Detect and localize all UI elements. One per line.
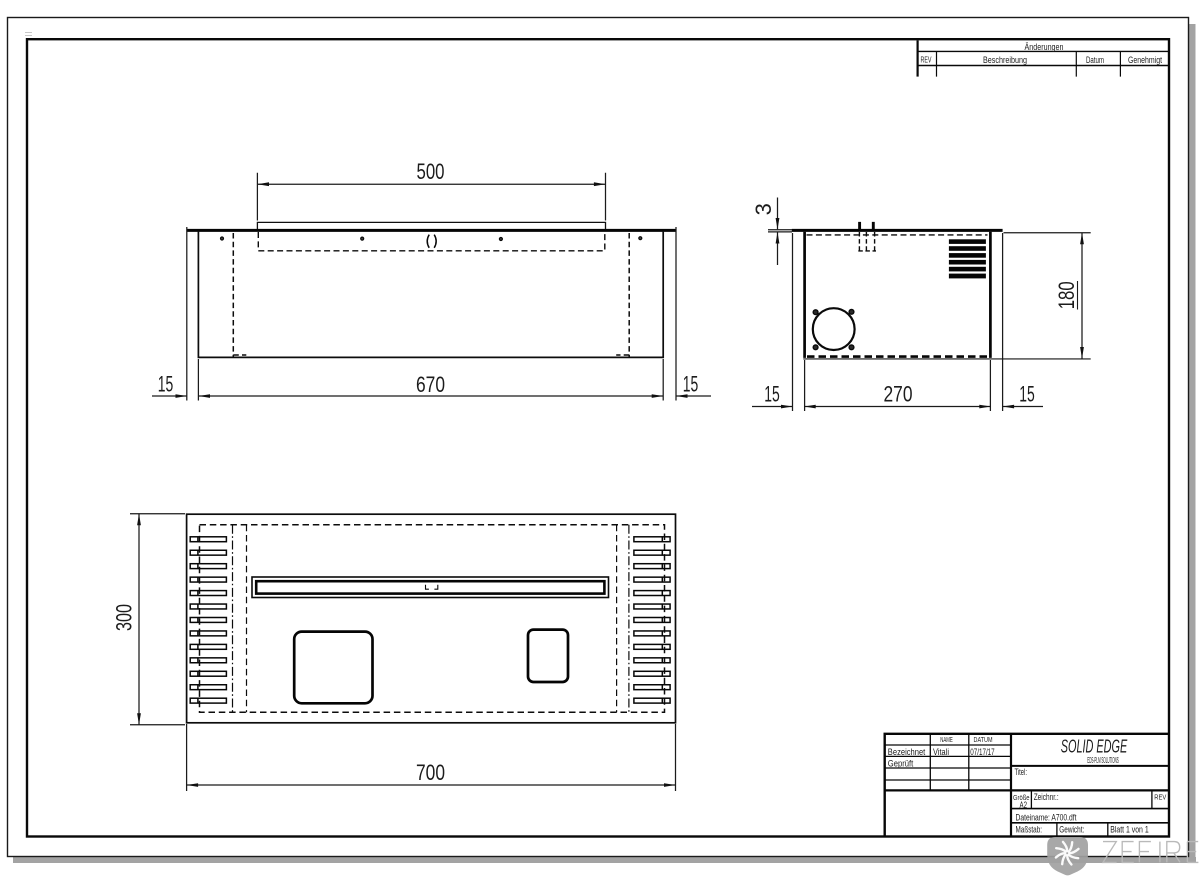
svg-text:EDS-PLM SOLUTIONS: EDS-PLM SOLUTIONS [1087, 756, 1119, 765]
svg-text:180: 180 [1054, 281, 1079, 309]
svg-text:Blatt 1 von 1: Blatt 1 von 1 [1110, 825, 1149, 835]
svg-text:Maßstab:: Maßstab: [1016, 825, 1043, 835]
svg-text:300: 300 [112, 604, 137, 631]
svg-text:670: 670 [416, 372, 445, 397]
svg-text:Geprüft: Geprüft [888, 758, 914, 768]
svg-text:Dateiname: A700.dft: Dateiname: A700.dft [1016, 813, 1077, 823]
svg-text:700: 700 [416, 760, 445, 785]
svg-text:270: 270 [884, 382, 913, 407]
svg-text:15: 15 [764, 382, 780, 407]
svg-text:Titel:: Titel: [1015, 767, 1028, 777]
svg-text:Beschreibung: Beschreibung [983, 55, 1027, 65]
svg-text:REV: REV [1154, 792, 1166, 801]
svg-text:Gewicht:: Gewicht: [1059, 825, 1084, 835]
svg-text:REV: REV [921, 56, 932, 65]
svg-text:15: 15 [158, 372, 174, 397]
svg-text:Genehmigt: Genehmigt [1128, 55, 1162, 65]
svg-text:Vitali: Vitali [933, 747, 949, 757]
svg-text:DATUM: DATUM [974, 737, 993, 744]
svg-text:SOLID EDGE: SOLID EDGE [1061, 735, 1128, 756]
svg-text:15: 15 [683, 372, 699, 397]
svg-text:Änderungen: Änderungen [1025, 42, 1064, 52]
svg-text:07/17/17: 07/17/17 [970, 747, 995, 757]
svg-text:Datum: Datum [1086, 55, 1104, 65]
svg-text:Bezeichnet: Bezeichnet [888, 747, 926, 757]
svg-text:3: 3 [751, 203, 776, 215]
svg-text:15: 15 [1019, 382, 1035, 407]
svg-text:Zeichnr.:: Zeichnr.: [1034, 792, 1059, 802]
svg-text:500: 500 [417, 159, 445, 184]
svg-text:NAME: NAME [940, 737, 953, 744]
